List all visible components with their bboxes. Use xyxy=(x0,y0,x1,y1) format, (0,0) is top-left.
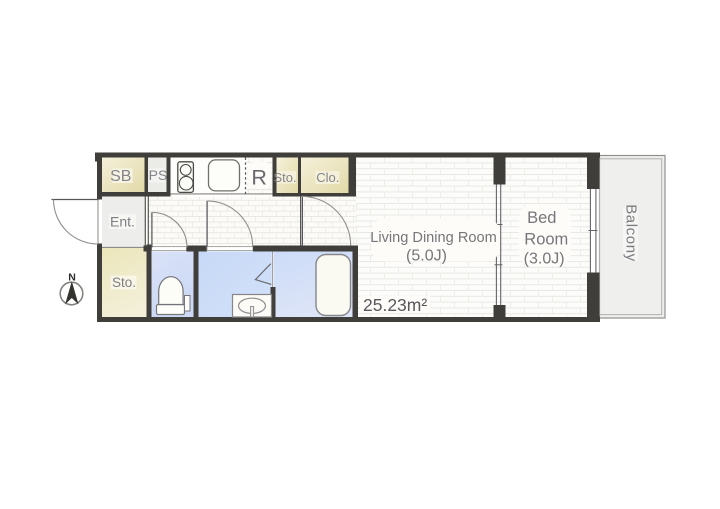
svg-text:(5.0J): (5.0J) xyxy=(406,248,447,265)
svg-text:(3.0J): (3.0J) xyxy=(524,251,565,268)
svg-text:SB: SB xyxy=(110,168,131,185)
svg-text:R: R xyxy=(251,165,267,189)
svg-text:Ent.: Ent. xyxy=(110,214,135,230)
svg-text:Sto.: Sto. xyxy=(273,170,296,185)
svg-text:Room: Room xyxy=(524,231,568,249)
svg-text:Living Dining Room: Living Dining Room xyxy=(370,230,497,246)
svg-text:Balcony: Balcony xyxy=(623,204,640,262)
svg-text:Sto.: Sto. xyxy=(112,275,136,290)
svg-text:Clo.: Clo. xyxy=(316,170,339,185)
svg-text:Bed: Bed xyxy=(527,209,556,227)
svg-text:PS: PS xyxy=(149,167,168,183)
svg-text:25.23m²: 25.23m² xyxy=(363,295,427,315)
svg-text:N: N xyxy=(68,271,76,283)
